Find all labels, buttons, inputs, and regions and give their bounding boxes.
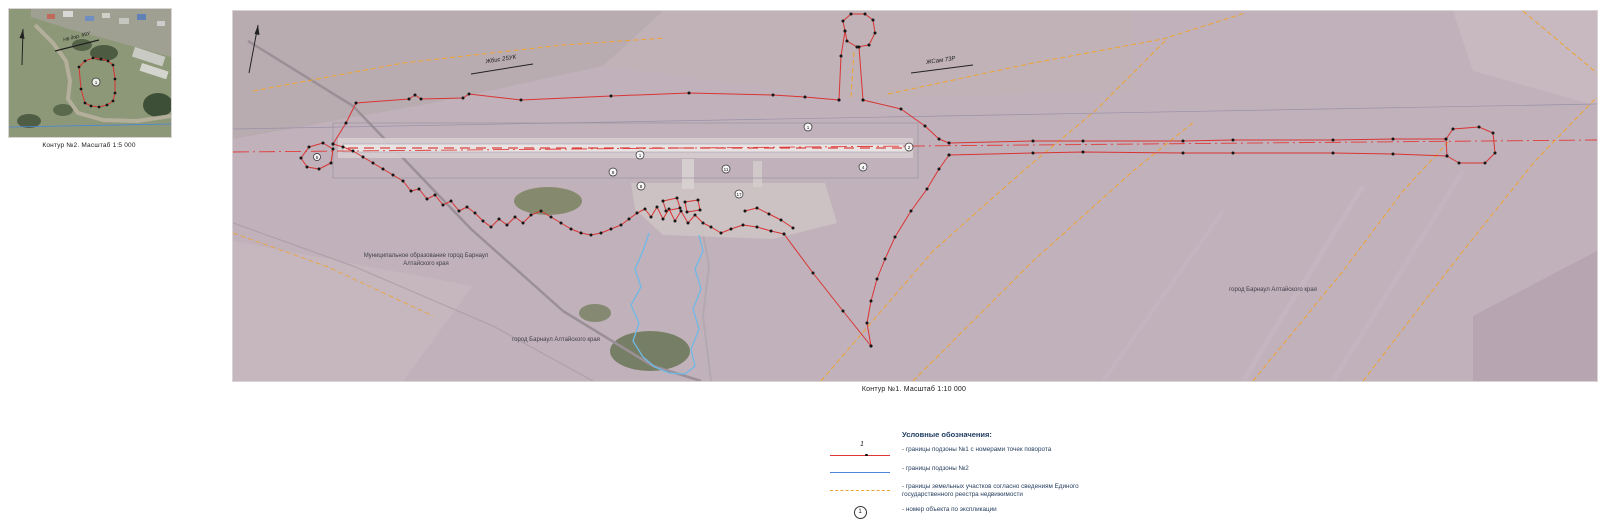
inset-map-caption: Контур №2. Масштаб 1:5 000 [8, 142, 170, 149]
legend-item: - границы земельных участков согласно св… [828, 483, 1118, 499]
turn-point-dot [1484, 162, 1487, 165]
turn-point-dot [1032, 152, 1035, 155]
turn-point-dot [838, 99, 841, 102]
turn-point-dot [506, 224, 509, 227]
turn-point-dot [694, 214, 697, 217]
turn-point-dot [100, 58, 103, 61]
vegetation [72, 39, 92, 51]
building [85, 16, 94, 21]
main-map-canvas: Муниципальное образование город БарнаулА… [232, 10, 1598, 382]
vegetation [579, 304, 611, 322]
object-number-marker: 8 [637, 182, 645, 190]
turn-point-dot [442, 204, 445, 207]
turn-point-dot [679, 207, 682, 210]
turn-point-dot [308, 146, 311, 149]
turn-point-dot [842, 20, 845, 23]
turn-point-dot [730, 228, 733, 231]
object-number-marker: 11 [722, 165, 730, 173]
object-number-marker: 2 [905, 143, 913, 151]
vegetation [53, 104, 73, 116]
turn-point-dot [322, 142, 325, 145]
object-number-marker: 1 [92, 78, 100, 86]
turn-point-dot [418, 188, 421, 191]
turn-point-dot [662, 200, 665, 203]
turn-point-dot [688, 92, 691, 95]
turn-point-dot [884, 258, 887, 261]
turn-point-dot [107, 60, 110, 63]
taxiway [753, 161, 762, 187]
turn-point-dot [468, 93, 471, 96]
turn-point-dot [628, 218, 631, 221]
turn-point-dot [352, 150, 355, 153]
legend-item: 1 - границы подзоны №1 с номерами точек … [828, 446, 1118, 458]
turn-point-dot [78, 66, 81, 69]
turn-point-dot [1332, 139, 1335, 142]
apron [631, 183, 837, 239]
turn-point-dot [894, 236, 897, 239]
turn-point-dot [306, 166, 309, 169]
turn-point-dot [1082, 140, 1085, 143]
turn-point-dot [840, 55, 843, 58]
turn-point-dot [872, 19, 875, 22]
turn-point-dot [697, 199, 700, 202]
turn-point-dot [474, 212, 477, 215]
turn-point-dot [402, 180, 405, 183]
object-number-marker: 5 [314, 154, 321, 161]
turn-point-dot [783, 233, 786, 236]
turn-point-dot [1232, 152, 1235, 155]
building [47, 14, 55, 19]
svg-text:2: 2 [908, 145, 911, 150]
turn-point-dot [410, 190, 413, 193]
turn-point-dot [870, 300, 873, 303]
turn-point-dot [770, 230, 773, 233]
building [137, 14, 146, 20]
turn-point-dot [1332, 152, 1335, 155]
legend-swatch [828, 465, 892, 477]
turn-point-dot [684, 201, 687, 204]
turn-point-dot [610, 95, 613, 98]
turn-point-dot [414, 94, 417, 97]
inset-map-figure: Нв дор. 69У1 Контур №2. Масштаб 1:5 000 [8, 8, 170, 149]
turn-point-dot [910, 210, 913, 213]
turn-point-dot [580, 232, 583, 235]
turn-point-dot [720, 232, 723, 235]
turn-point-dot [842, 310, 845, 313]
turn-point-dot [674, 220, 677, 223]
turn-point-dot [498, 218, 501, 221]
turn-point-dot [106, 104, 109, 107]
turn-point-dot [636, 212, 639, 215]
turn-point-dot [114, 78, 117, 81]
legend-swatch-number: 1 [854, 506, 867, 519]
turn-point-dot [686, 211, 689, 214]
turn-point-dot [482, 220, 485, 223]
object-number-marker: 17 [735, 190, 743, 198]
building [119, 18, 129, 24]
turn-point-dot [610, 228, 613, 231]
city-label: город Барнаул Алтайского края [1229, 286, 1317, 293]
turn-point-dot [665, 210, 668, 213]
turn-point-dot [948, 142, 951, 145]
legend-item-label: - номер объекта по экспликации [902, 506, 997, 514]
turn-point-dot [926, 188, 929, 191]
turn-point-dot [938, 168, 941, 171]
object-number-marker: 6 [609, 168, 617, 176]
turn-point-dot [355, 102, 358, 105]
turn-point-dot [874, 32, 877, 35]
turn-point-dot [680, 210, 683, 213]
turn-point-dot [330, 162, 333, 165]
turn-point-dot [862, 99, 865, 102]
turn-point-dot [426, 198, 429, 201]
legend-item-label: - границы подзоны №1 с номерами точек по… [902, 446, 1051, 454]
legend-swatch: 1 [828, 446, 892, 458]
svg-text:17: 17 [736, 192, 742, 197]
svg-text:1: 1 [639, 153, 642, 158]
building [102, 13, 110, 18]
turn-point-dot [744, 210, 747, 213]
turn-point-dot [1392, 138, 1395, 141]
turn-point-dot [780, 219, 783, 222]
main-map-figure: Муниципальное образование город БарнаулА… [232, 10, 1596, 393]
turn-point-dot [90, 105, 93, 108]
turn-point-dot [1446, 155, 1449, 158]
turn-point-dot [924, 125, 927, 128]
object-number-marker: 1 [636, 151, 644, 159]
turn-point-dot [699, 209, 702, 212]
turn-point-dot [84, 102, 87, 105]
turn-point-dot [382, 168, 385, 171]
turn-point-dot [702, 222, 705, 225]
turn-point-dot [1232, 139, 1235, 142]
turn-point-dot [300, 157, 303, 160]
turn-point-dot [342, 146, 345, 149]
turn-point-dot [434, 194, 437, 197]
turn-point-dot [372, 162, 375, 165]
municipality-label: Муниципальное образование город Барнаул [364, 253, 489, 259]
turn-point-dot [1445, 138, 1448, 141]
turn-point-dot [868, 44, 871, 47]
turn-point-dot [676, 197, 679, 200]
legend-item: 1 - номер объекта по экспликации [828, 506, 1118, 518]
legend-swatch: 1 [828, 506, 892, 518]
inset-map-canvas: Нв дор. 69У1 [8, 8, 172, 138]
turn-point-dot [98, 106, 101, 109]
turn-point-dot [408, 98, 411, 101]
turn-point-dot [520, 99, 523, 102]
turn-point-dot [522, 222, 525, 225]
turn-point-dot [362, 156, 365, 159]
turn-point-dot [392, 174, 395, 177]
legend-swatch-number: 1 [860, 441, 864, 448]
legend-item-label: - границы земельных участков согласно св… [902, 483, 1102, 499]
turn-point-dot [420, 98, 423, 101]
turn-point-dot [514, 216, 517, 219]
turn-point-dot [332, 143, 335, 146]
turn-point-dot [1458, 162, 1461, 165]
main-map-caption: Контур №1. Масштаб 1:10 000 [232, 386, 1596, 393]
turn-point-dot [84, 60, 87, 63]
turn-point-dot [550, 216, 553, 219]
turn-point-dot [466, 206, 469, 209]
turn-point-dot [756, 226, 759, 229]
legend-item-label: - границы подзоны №2 [902, 465, 969, 473]
vegetation [514, 187, 582, 215]
turn-point-dot [850, 13, 853, 16]
turn-point-dot [560, 222, 563, 225]
turn-point-dot [450, 200, 453, 203]
turn-point-dot [948, 154, 951, 157]
turn-point-dot [1494, 152, 1497, 155]
turn-point-dot [92, 57, 95, 60]
svg-text:1: 1 [95, 80, 98, 85]
turn-point-dot [332, 148, 335, 151]
turn-point-dot [742, 224, 745, 227]
svg-text:5: 5 [316, 155, 319, 160]
legend-title: Условные обозначения: [902, 430, 1118, 439]
svg-text:8: 8 [640, 184, 643, 189]
turn-point-dot [1452, 128, 1455, 131]
turn-point-dot [1032, 140, 1035, 143]
turn-point-dot [900, 108, 903, 111]
turn-point-dot [756, 207, 759, 210]
turn-point-dot [590, 234, 593, 237]
turn-point-dot [80, 88, 83, 91]
turn-point-dot [114, 92, 117, 95]
turn-point-dot [1082, 151, 1085, 154]
turn-point-dot [112, 100, 115, 103]
turn-point-dot [804, 96, 807, 99]
turn-point-dot [710, 226, 713, 229]
turn-point-dot [1182, 152, 1185, 155]
turn-point-dot [490, 226, 493, 229]
municipality-label: Алтайского края [403, 260, 449, 267]
turn-point-dot [866, 322, 869, 325]
object-number-marker: 4 [859, 163, 867, 171]
turn-point-dot [858, 46, 861, 49]
vegetation [143, 93, 172, 117]
building [63, 11, 73, 17]
turn-point-dot [530, 214, 533, 217]
turn-point-dot [812, 272, 815, 275]
turn-point-dot [864, 13, 867, 16]
turn-point-dot [768, 213, 771, 216]
object-number-marker: 1 [804, 123, 812, 131]
turn-point-dot [792, 227, 795, 230]
vegetation [17, 114, 41, 128]
turn-point-dot [1478, 126, 1481, 129]
building [157, 21, 165, 26]
legend-rows: 1 - границы подзоны №1 с номерами точек … [828, 446, 1118, 523]
city-label: город Барнаул Алтайского края [512, 336, 600, 343]
turn-point-dot [1182, 140, 1185, 143]
legend-item: - границы подзоны №2 [828, 465, 1118, 477]
turn-point-dot [876, 278, 879, 281]
svg-text:11: 11 [724, 167, 729, 172]
turn-point-dot [345, 122, 348, 125]
svg-text:4: 4 [862, 165, 865, 170]
turn-point-dot [600, 232, 603, 235]
turn-point-dot [938, 138, 941, 141]
turn-point-dot [687, 222, 690, 225]
turn-point-dot [1392, 153, 1395, 156]
turn-point-dot [662, 218, 665, 221]
turn-point-dot [846, 40, 849, 43]
turn-point-dot [656, 206, 659, 209]
turn-point-dot [1492, 132, 1495, 135]
turn-point-dot [650, 216, 653, 219]
turn-point-dot [540, 210, 543, 213]
svg-text:6: 6 [612, 170, 615, 175]
legend-swatch [828, 483, 892, 495]
legend: Условные обозначения: 1 - границы подзон… [828, 430, 1118, 523]
turn-point-dot [462, 97, 465, 100]
turn-point-dot [318, 168, 321, 171]
turn-point-dot [772, 94, 775, 97]
turn-point-dot [620, 224, 623, 227]
turn-point-dot [870, 345, 873, 348]
turn-point-dot [644, 208, 647, 211]
plan-document-page: Нв дор. 69У1 Контур №2. Масштаб 1:5 000 … [0, 0, 1601, 523]
svg-text:1: 1 [807, 125, 810, 130]
turn-point-dot [570, 228, 573, 231]
turn-point-dot [844, 30, 847, 33]
turn-point-dot [112, 64, 115, 67]
taxiway [682, 159, 694, 189]
turn-point-dot [458, 210, 461, 213]
